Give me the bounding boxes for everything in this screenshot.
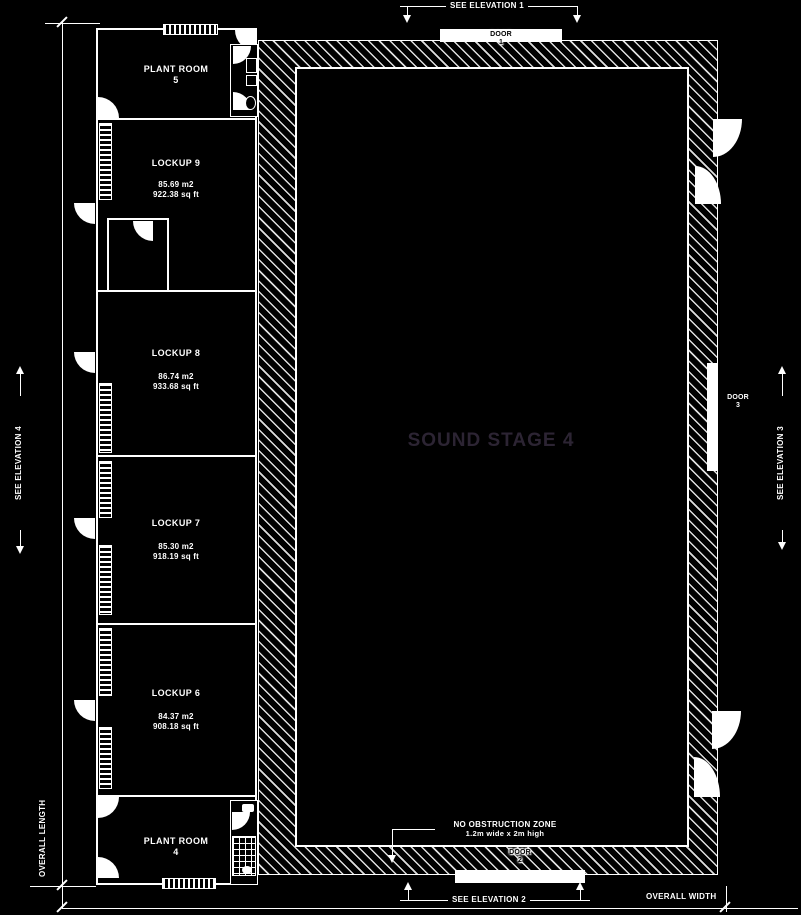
arrow-down-icon	[403, 15, 411, 23]
door-swing-icon	[74, 203, 95, 224]
see-elevation-1-label: SEE ELEVATION 1	[446, 1, 528, 10]
door-leaf-icon	[713, 119, 742, 157]
arrow-down-icon	[388, 855, 396, 863]
louvre-vent	[99, 727, 112, 789]
overall-width-label: OVERALL WIDTH	[646, 892, 716, 901]
see-elevation-3-label: SEE ELEVATION 3	[776, 396, 785, 530]
see-elevation-4-label: SEE ELEVATION 4	[14, 396, 23, 530]
wc-fixture-icon	[246, 58, 257, 73]
louvre-vent	[99, 461, 112, 518]
lockup-9-label: LOCKUP 9	[96, 158, 256, 169]
door-swing-icon	[98, 797, 119, 818]
sound-stage-room	[295, 67, 689, 847]
lockup-7-area: 85.30 m2918.19 sq ft	[96, 542, 256, 562]
door-leaf-icon	[712, 711, 741, 749]
door-swing-icon	[98, 857, 119, 878]
arrow-up-icon	[576, 882, 584, 890]
lockup-7-label: LOCKUP 7	[96, 518, 256, 529]
wc-fixture-icon	[242, 866, 252, 874]
arrow-up-icon	[778, 366, 786, 374]
floor-plan-drawing: SOUND STAGE 4 DOOR1 DOOR2 DOOR3 PLANT RO…	[0, 0, 801, 915]
sink-fixture-icon	[242, 804, 254, 812]
door-2-label: DOOR2	[455, 849, 585, 865]
dimension-line-width	[62, 908, 798, 909]
wc-fixture-icon	[245, 96, 256, 110]
lockup-8-label: LOCKUP 8	[96, 348, 256, 359]
door-swing-icon	[98, 97, 119, 118]
louvre-vent	[162, 878, 216, 889]
wall-divider	[96, 455, 257, 457]
arrow-up-icon	[16, 366, 24, 374]
louvre-vent	[99, 545, 112, 615]
arrow-down-icon	[573, 15, 581, 23]
door-3	[707, 363, 718, 471]
louvre-vent	[99, 628, 112, 696]
door-swing-icon	[74, 518, 95, 539]
louvre-vent	[99, 383, 112, 453]
wall-divider	[96, 118, 257, 120]
extension-line	[30, 886, 96, 887]
overall-length-label: OVERALL LENGTH	[38, 790, 47, 886]
arrow-down-icon	[778, 542, 786, 550]
bracket-stub	[408, 890, 409, 900]
lockup-6-label: LOCKUP 6	[96, 688, 256, 699]
wall-divider	[96, 795, 257, 797]
lockup-9-area: 85.69 m2922.38 sq ft	[96, 180, 256, 200]
lockup-8-area: 86.74 m2933.68 sq ft	[96, 372, 256, 392]
extension-line	[726, 886, 727, 912]
door-swing-icon	[74, 352, 95, 373]
lockup-6-area: 84.37 m2908.18 sq ft	[96, 712, 256, 732]
sink-fixture-icon	[246, 75, 257, 86]
arrow-up-icon	[404, 882, 412, 890]
arrow-down-icon	[16, 546, 24, 554]
no-obstruction-note: NO OBSTRUCTION ZONE 1.2m wide x 2m high	[420, 820, 590, 838]
dimension-line-length	[62, 22, 63, 908]
louvre-vent	[99, 123, 112, 200]
door-swing-icon	[74, 700, 95, 721]
dimension-tick-icon	[719, 901, 730, 912]
no-obstruction-line1: NO OBSTRUCTION ZONE	[420, 820, 590, 829]
no-obstruction-line2: 1.2m wide x 2m high	[420, 829, 590, 838]
extension-line	[45, 23, 100, 24]
sound-stage-label: SOUND STAGE 4	[295, 430, 687, 452]
door-2	[455, 870, 585, 883]
bracket-stub	[580, 890, 581, 900]
door-1-label: DOOR1	[440, 31, 562, 47]
door-3-label: DOOR3	[720, 394, 756, 410]
leader-line	[392, 829, 435, 830]
louvre-vent	[163, 24, 218, 35]
leader-line	[392, 829, 393, 857]
wall-divider	[96, 623, 257, 625]
see-elevation-2-label: SEE ELEVATION 2	[448, 895, 530, 904]
